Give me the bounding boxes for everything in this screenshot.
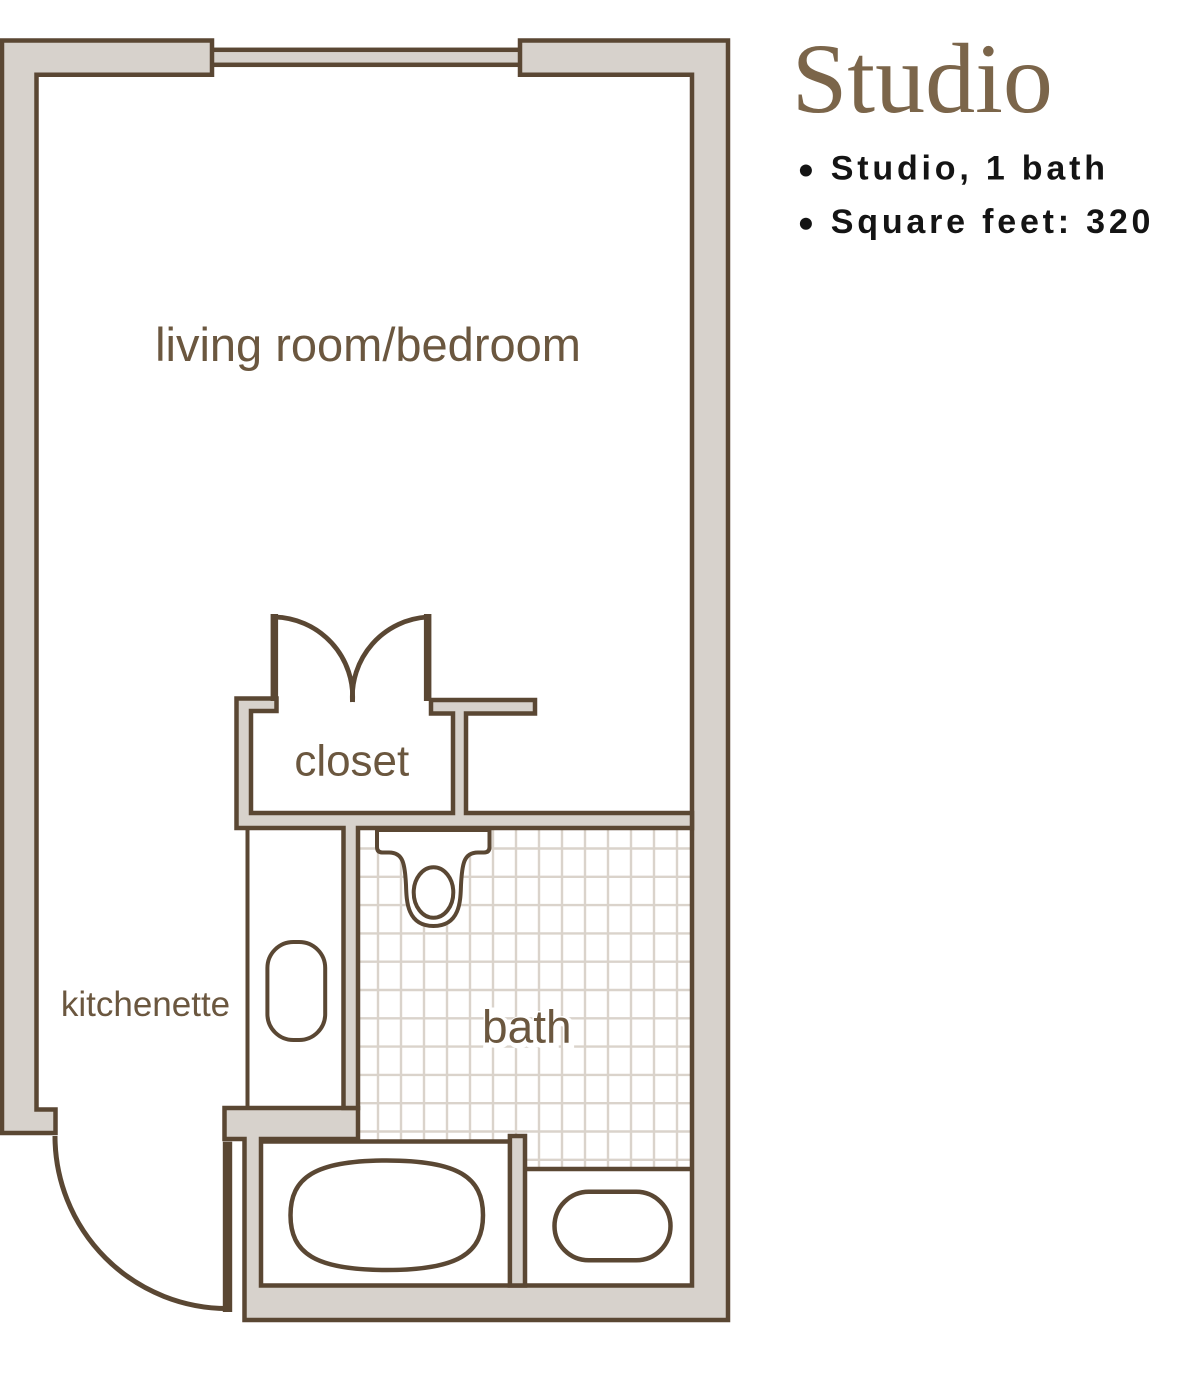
svg-text:Studio, 1 bath: Studio, 1 bath — [831, 150, 1109, 188]
svg-text:closet: closet — [294, 737, 409, 786]
svg-text:bath: bath — [482, 1000, 572, 1052]
svg-text:Square feet: 320: Square feet: 320 — [831, 203, 1154, 241]
svg-text:kitchenette: kitchenette — [61, 985, 230, 1024]
svg-text:Studio: Studio — [792, 23, 1053, 134]
svg-text:living room/bedroom: living room/bedroom — [155, 318, 581, 371]
